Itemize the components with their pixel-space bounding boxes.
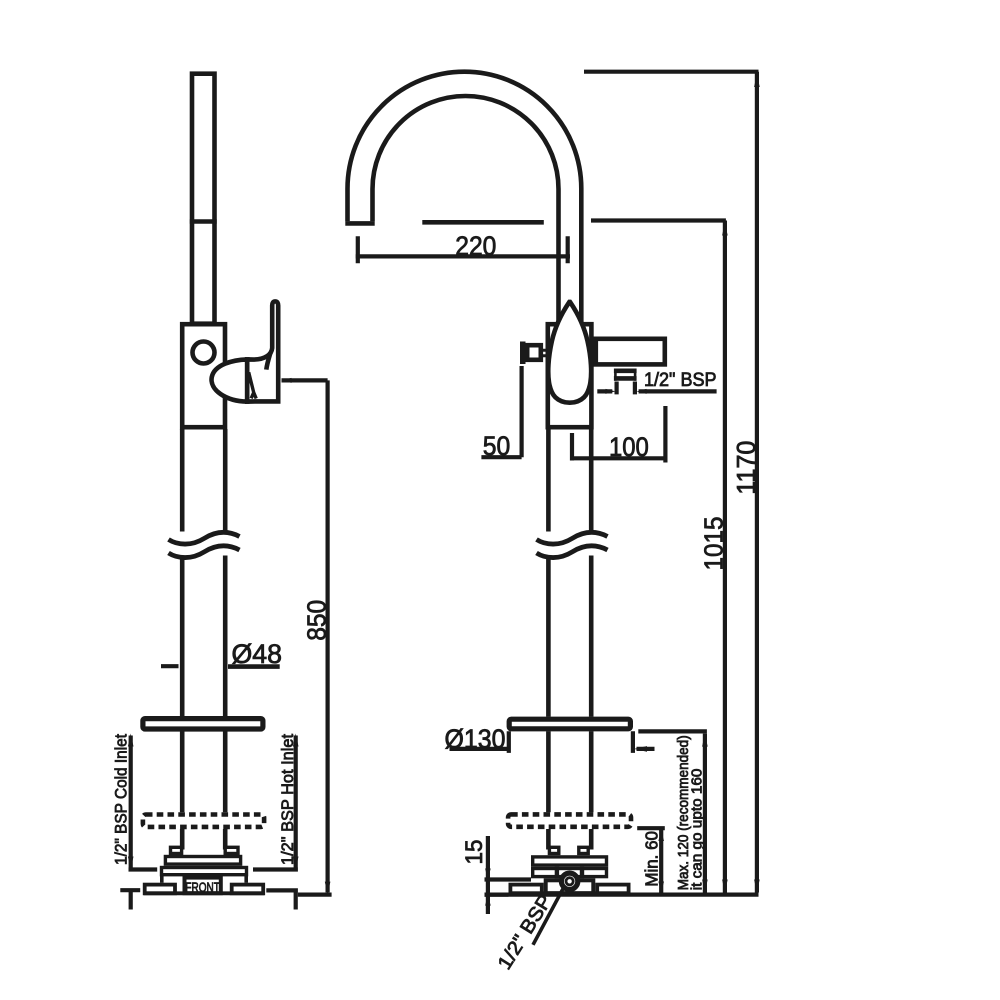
svg-text:50: 50	[483, 431, 511, 461]
svg-text:1/2" BSP Hot Inlet: 1/2" BSP Hot Inlet	[279, 734, 297, 865]
svg-text:850: 850	[302, 600, 332, 641]
svg-text:15: 15	[461, 840, 488, 865]
svg-text:it can go upto 160: it can go upto 160	[690, 769, 706, 891]
svg-text:Ø130: Ø130	[445, 724, 506, 754]
svg-text:Ø48: Ø48	[232, 639, 283, 669]
svg-text:220: 220	[455, 231, 496, 261]
svg-text:1170: 1170	[731, 441, 761, 495]
svg-text:1/2" BSP: 1/2" BSP	[494, 891, 557, 974]
svg-text:100: 100	[609, 432, 649, 462]
svg-text:1/2" BSP Cold Inlet: 1/2" BSP Cold Inlet	[113, 734, 131, 865]
svg-text:1015: 1015	[699, 517, 729, 571]
svg-text:Min. 60: Min. 60	[642, 831, 662, 887]
svg-text:FRONT: FRONT	[185, 879, 220, 895]
svg-text:1/2" BSP: 1/2" BSP	[644, 370, 717, 391]
